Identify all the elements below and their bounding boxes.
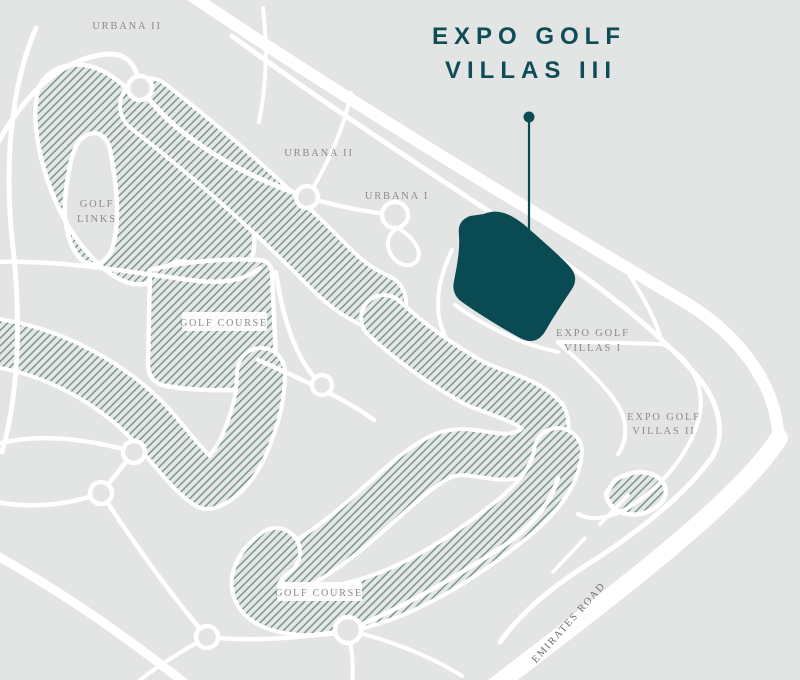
map-canvas: URBANA II URBANA II URBANA I GOLF LINKS …	[0, 0, 800, 680]
roundabout-icon	[312, 375, 332, 395]
roundabout-icon	[128, 76, 152, 100]
roundabout-icon	[296, 186, 318, 208]
roundabout-icon	[90, 482, 112, 504]
page-title: VILLAS III	[445, 57, 617, 84]
roundabout-icon	[196, 626, 218, 648]
roundabout-icon	[335, 617, 361, 643]
label-urbana-ii: URBANA II	[284, 148, 354, 159]
label-golf-links: GOLF	[80, 199, 115, 210]
location-map: URBANA II URBANA II URBANA I GOLF LINKS …	[0, 0, 800, 680]
label-expo-golf-villas-i: VILLAS I	[564, 343, 622, 354]
label-expo-golf-villas-ii: VILLAS II	[632, 426, 695, 437]
label-golf-course-south: GOLF COURSE	[275, 588, 363, 599]
label-urbana-i: URBANA I	[365, 191, 429, 202]
label-urbana-ii-top: URBANA II	[92, 21, 162, 32]
roundabout-icon	[123, 441, 145, 463]
roundabout-icon	[382, 202, 408, 228]
label-expo-golf-villas-ii: EXPO GOLF	[627, 412, 701, 423]
label-expo-golf-villas-i: EXPO GOLF	[556, 328, 630, 339]
location-pin-icon	[524, 112, 535, 123]
label-golf-course-west: GOLF COURSE	[180, 318, 268, 329]
label-golf-links: LINKS	[77, 214, 117, 225]
page-title: EXPO GOLF	[432, 23, 626, 50]
